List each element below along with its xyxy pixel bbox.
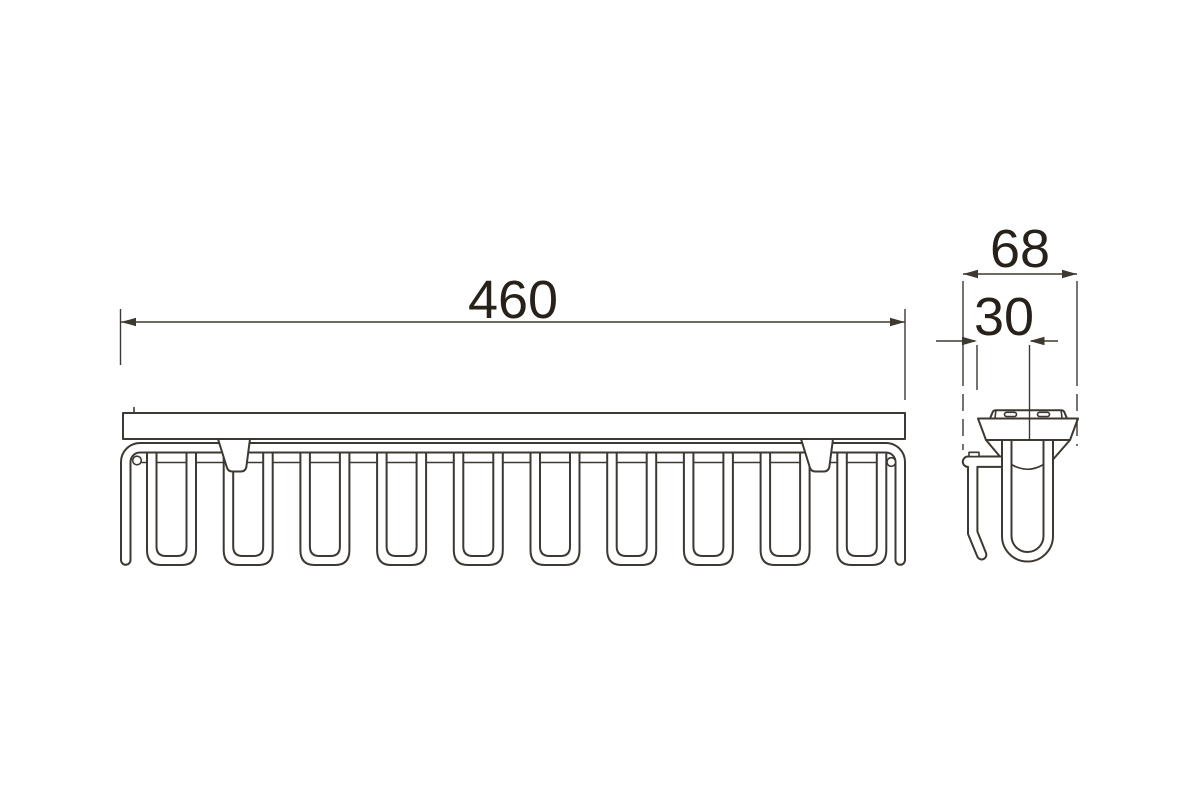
dimension-label-length: 460 [468, 270, 558, 330]
dimension-label-depth: 68 [990, 219, 1050, 279]
bracket-underside-arc [1012, 465, 1044, 470]
dimension-label-offset: 30 [974, 287, 1034, 347]
technical-drawing-page: 460 68 30 [0, 0, 1200, 800]
tie-hook [761, 453, 810, 566]
arrowhead-68-right [1062, 270, 1077, 278]
plate-slot-right [1038, 412, 1050, 416]
plate-tick-right [1061, 411, 1062, 418]
arrowhead-460-right [890, 318, 905, 326]
tie-hook [684, 453, 733, 566]
rod-tab [969, 452, 979, 456]
tie-hook [607, 453, 656, 566]
tie-hook [454, 453, 503, 566]
tie-hook [300, 453, 349, 566]
plate-slot-left [1005, 412, 1017, 416]
arrowhead-460-left [121, 318, 136, 326]
tie-hook [377, 453, 426, 566]
dimension-length: 460 [121, 270, 906, 400]
front-view [121, 408, 905, 566]
side-hook [1002, 440, 1053, 562]
side-view [963, 410, 1078, 561]
wire-end-left [133, 456, 142, 465]
tie-hook [531, 453, 580, 566]
bracket-body [978, 419, 1078, 441]
bracket-taper-right [1053, 440, 1070, 460]
wire-end-right [887, 458, 896, 467]
bracket-top-plate [990, 410, 1067, 418]
mounting-bar [123, 413, 905, 439]
side-rod-and-wire-end [963, 457, 1002, 560]
arrowhead-68-left [963, 270, 978, 278]
tie-hook [837, 453, 886, 566]
tie-hooks [147, 453, 886, 566]
plate-tick-left [995, 411, 996, 418]
tie-rack-technical-drawing: 460 68 30 [0, 0, 1200, 800]
tie-hook [147, 453, 196, 566]
